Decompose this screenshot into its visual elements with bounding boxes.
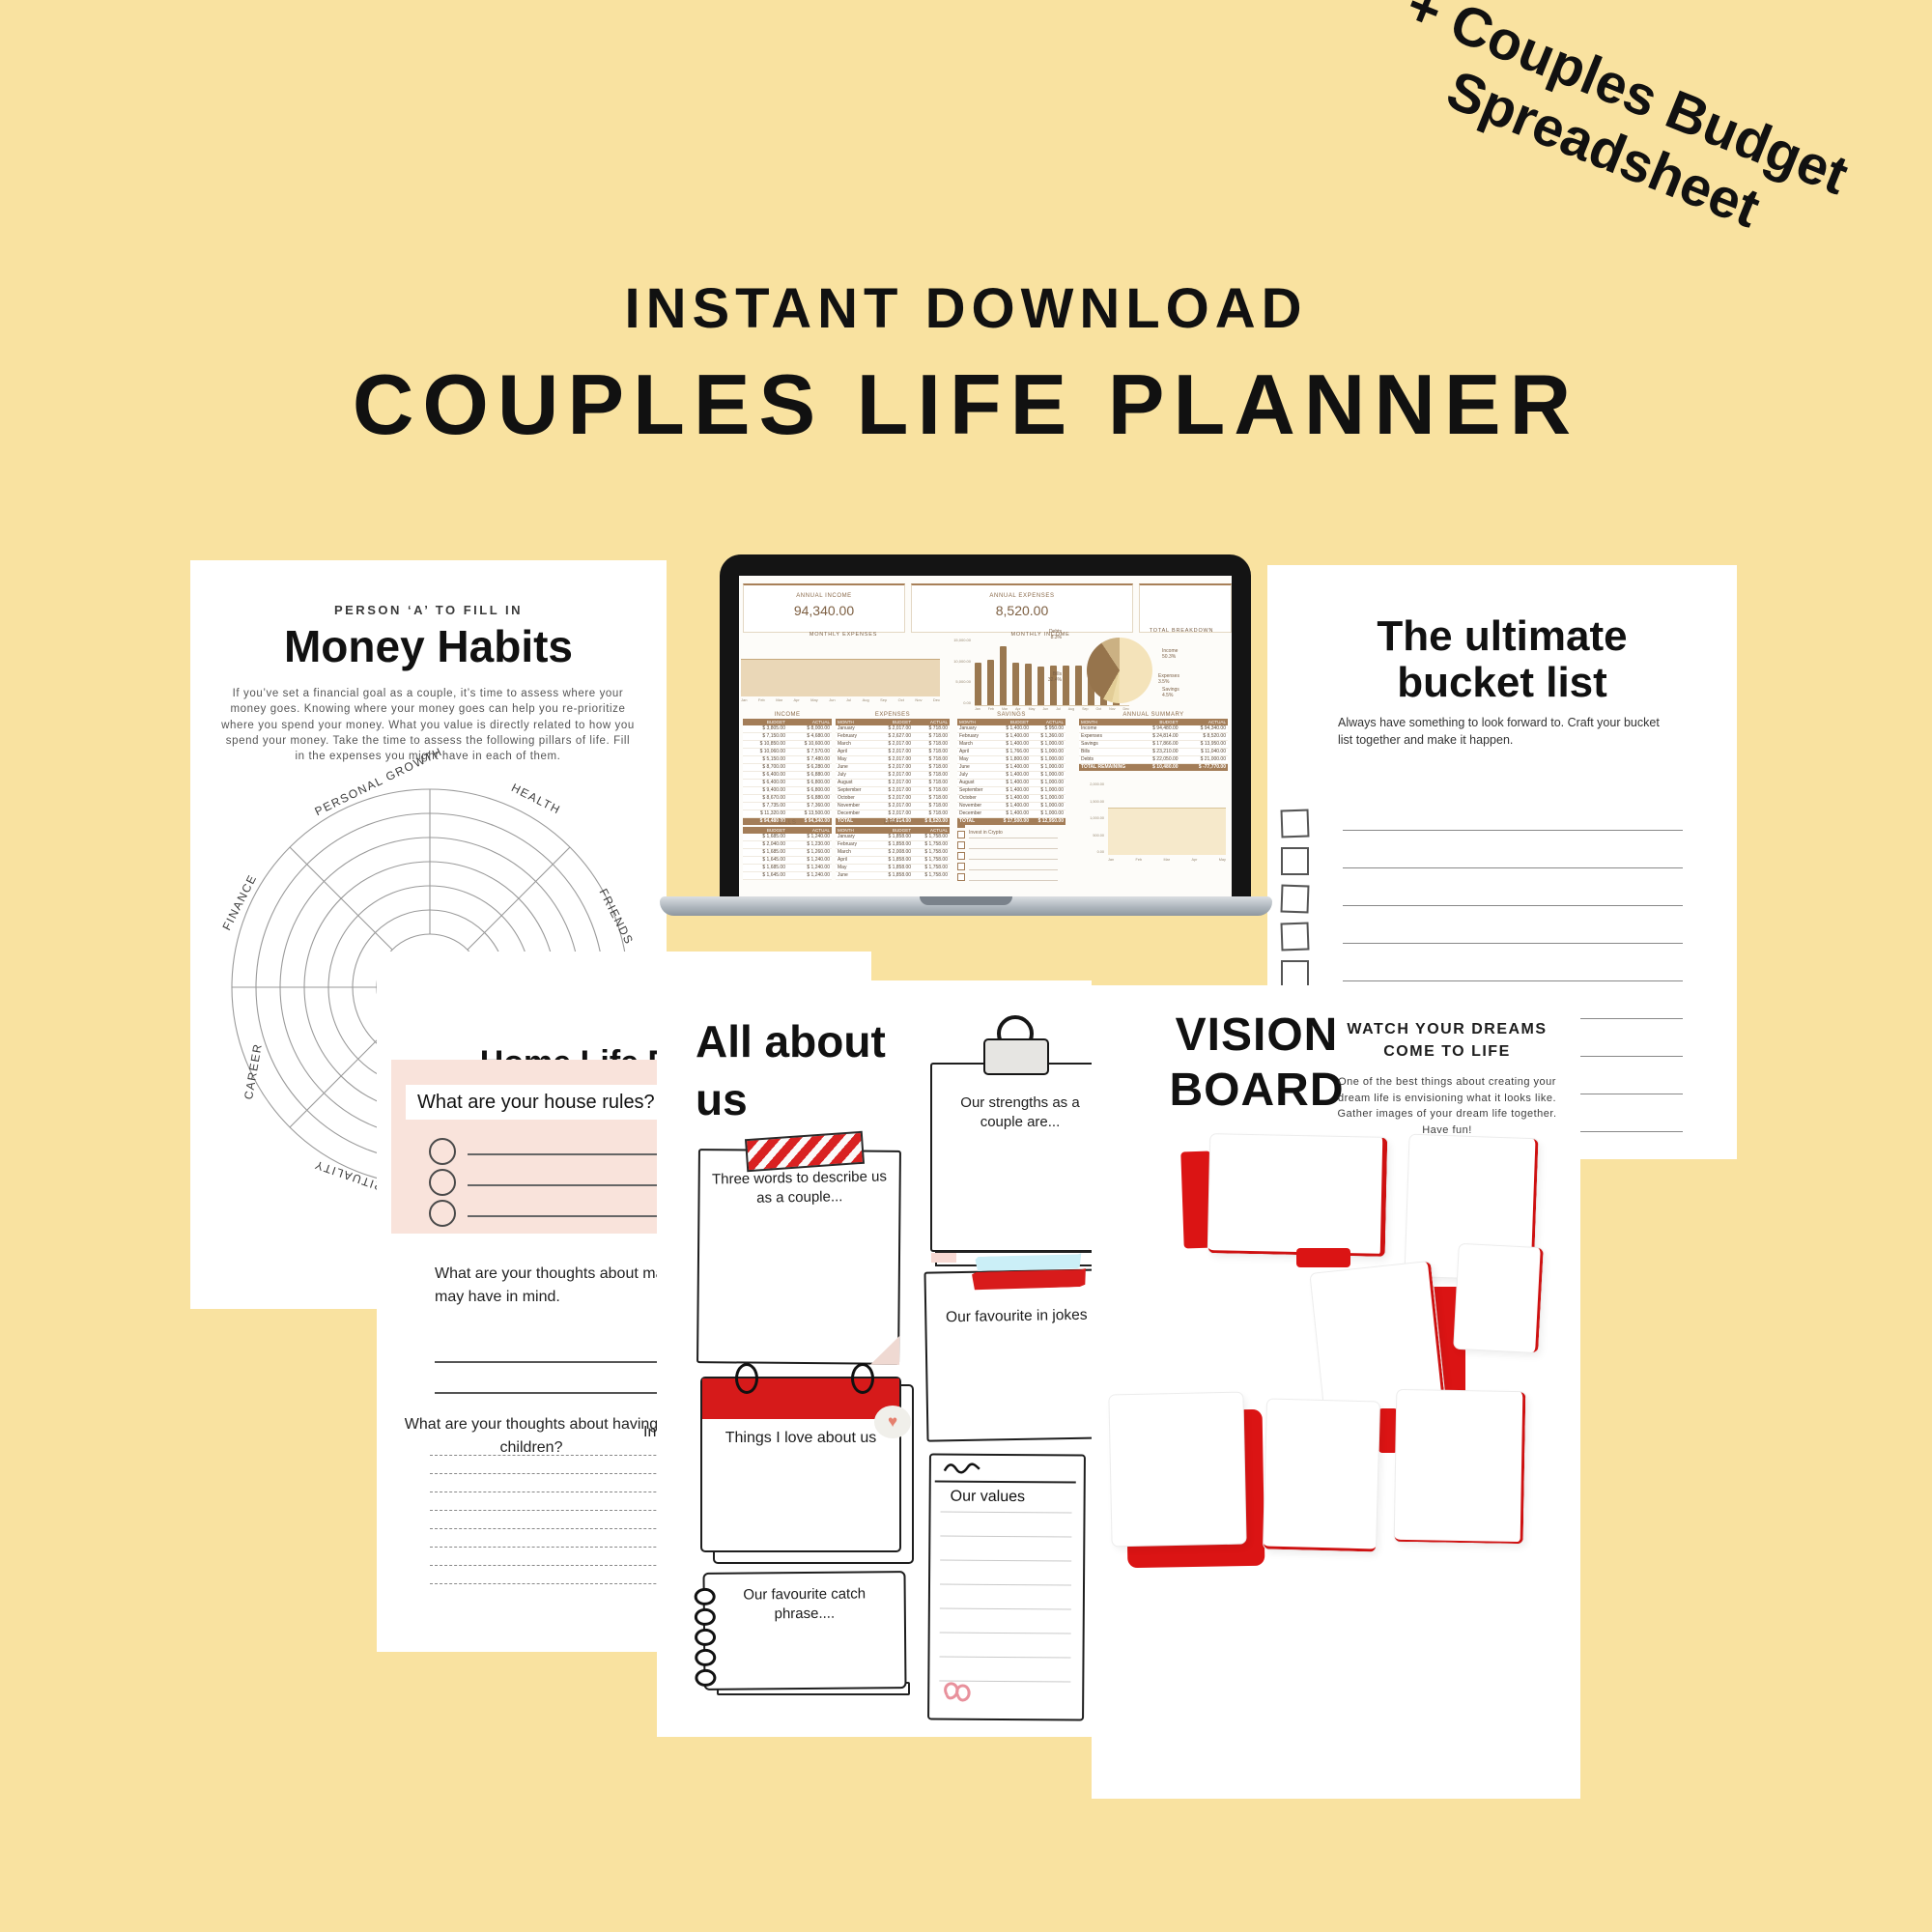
empty-checkbox	[957, 873, 965, 881]
pink-sheet-edge	[931, 1253, 956, 1263]
table-cell: $ 1,400.00	[996, 810, 1031, 817]
values-line	[940, 1536, 1071, 1538]
bar-axis-label: 0.00	[950, 700, 971, 705]
table-row: BUDGETACTUAL	[743, 719, 832, 725]
table-cell: $ 2,017.00	[876, 787, 913, 794]
table-cell: May	[957, 756, 996, 763]
bucket-list-title: The ultimate bucket list	[1267, 613, 1737, 705]
table-cell: $ 1,240.00	[787, 857, 832, 864]
table-cell: $ 718.00	[913, 772, 950, 779]
table-cell: $ 21,000.00	[1180, 756, 1228, 763]
table-row: $ 1,685.00$ 1,260.00	[743, 849, 832, 857]
expenses-table: EXPENSESMONTHBUDGETACTUALJanuary$ 2,017.…	[836, 711, 950, 825]
table-cell: ACTUAL	[913, 719, 950, 725]
table-cell: $ 1,758.00	[913, 834, 950, 840]
table-cell: July	[836, 772, 876, 779]
table-cell: $ 11,320.00	[743, 810, 787, 817]
table-cell: $ 1,000.00	[1031, 772, 1065, 779]
table-row: January$ 1,858.00$ 1,758.00	[836, 834, 950, 841]
table-cell: $ 718.00	[913, 733, 950, 740]
table-cell: $ 1,400.00	[996, 803, 1031, 810]
income-table: INCOMEBUDGETACTUAL$ 3,805.00$ 8,000.00$ …	[743, 711, 832, 825]
table-cell: $ 1,400.00	[996, 780, 1031, 786]
red-photo-block-3	[1378, 1408, 1398, 1453]
table-row: November$ 2,017.00$ 718.00	[836, 803, 950, 810]
table-title: SAVINGS	[957, 711, 1065, 719]
table-cell: BUDGET	[743, 827, 787, 834]
table-cell: $ 1,240.00	[787, 834, 832, 840]
income-bar	[1025, 664, 1032, 705]
empty-checkbox	[957, 863, 965, 870]
table-cell: April	[836, 857, 876, 864]
table-cell: $ 1,360.00	[1031, 733, 1065, 740]
table-cell: $ 1,400.00	[996, 772, 1031, 779]
table-cell: $ 3,805.00	[743, 725, 787, 732]
bucket-checkbox	[1281, 810, 1310, 838]
table-cell: January	[836, 834, 876, 840]
table-cell: $ 2,017.00	[876, 756, 913, 763]
table-cell: $ 1,000.00	[1031, 749, 1065, 755]
table-cell: $ 8,520.00	[1180, 733, 1228, 740]
table-row: November$ 1,400.00$ 1,000.00	[957, 803, 1065, 810]
income-bar	[1012, 663, 1019, 705]
table-cell: $ 1,685.00	[743, 834, 787, 840]
photo-frame-1	[1208, 1134, 1388, 1257]
table-cell: $ 7,360.00	[787, 803, 832, 810]
income-bar	[1000, 646, 1007, 705]
catch-phrase-note: Our favourite catch phrase....	[702, 1571, 906, 1690]
table-cell: $ 1,766.00	[996, 749, 1031, 755]
catch-phrase-text: Our favourite catch phrase....	[711, 1584, 898, 1624]
area-month-label: Nov	[915, 697, 922, 702]
table-cell: $ 2,017.00	[876, 741, 913, 748]
table-cell: $ 718.00	[913, 795, 950, 802]
table-cell: $ 6,800.00	[787, 780, 832, 786]
rule-bullet-3	[429, 1200, 456, 1227]
table-cell: $ 6,880.00	[787, 795, 832, 802]
table-cell: BUDGET	[743, 719, 787, 725]
mini-month-label: Mar	[1163, 858, 1170, 862]
table-cell: $ 9,400.00	[743, 787, 787, 794]
table-cell: MONTH	[1079, 719, 1132, 725]
area-month-label: May	[810, 697, 818, 702]
table-title: INCOME	[743, 711, 832, 719]
table-cell: Debts	[1079, 756, 1132, 763]
table-row: March$ 2,008.00$ 1,758.00	[836, 849, 950, 857]
table-cell: $ 6,800.00	[787, 787, 832, 794]
bar-y-axis: 15,000.0010,000.005,000.000.00	[950, 638, 971, 705]
table-row: January$ 1,400.00$ 950.00	[957, 725, 1065, 733]
money-habits-title: Money Habits	[190, 620, 667, 672]
values-ruled-lines	[931, 1455, 1084, 1456]
table-cell: $ 2,017.00	[876, 803, 913, 810]
table-cell: $ 1,000.00	[1031, 795, 1065, 802]
area-month-label: Oct	[898, 697, 904, 702]
table-cell: June	[957, 764, 996, 771]
table-cell: $ 1,400.00	[996, 764, 1031, 771]
table-row: $ 2,040.00$ 1,230.00	[743, 841, 832, 849]
table-cell: BUDGET	[996, 719, 1031, 725]
table-cell: April	[957, 749, 996, 755]
table-row: July$ 1,400.00$ 1,000.00	[957, 772, 1065, 780]
table-cell: $ 1,400.00	[996, 787, 1031, 794]
table-row: MONTHBUDGETACTUAL	[1079, 719, 1228, 725]
table-row: $ 8,670.00$ 6,880.00	[743, 795, 832, 803]
table-cell: $ 1,758.00	[913, 872, 950, 879]
area-month-label: Mar	[776, 697, 782, 702]
table-row: Debts$ 22,050.00$ 21,000.00	[1079, 756, 1228, 764]
table-row: February$ 1,858.00$ 1,758.00	[836, 841, 950, 849]
table-cell: December	[836, 810, 876, 817]
table-cell: BUDGET	[876, 719, 913, 725]
table-cell: $ 1,400.00	[996, 741, 1031, 748]
table-row: December$ 1,400.00$ 1,000.00	[957, 810, 1065, 818]
table-cell: $ 1,400.00	[996, 795, 1031, 802]
table-cell: $ 2,017.00	[876, 772, 913, 779]
values-line	[940, 1584, 1071, 1586]
all-about-us-page: All about us Three words to describe us …	[657, 980, 1092, 1737]
table-cell: $ 1,685.00	[743, 865, 787, 871]
table-cell: October	[957, 795, 996, 802]
table-cell: July	[957, 772, 996, 779]
red-photo-tab	[1296, 1248, 1350, 1267]
monthly-expenses-area-chart: JanFebMarAprMayJunJulAugSepOctNovDec	[741, 641, 948, 703]
table-cell: $ 11,040.00	[1180, 749, 1228, 755]
goal-text: Invest in Crypto	[969, 830, 1003, 836]
table-cell: $ 1,645.00	[743, 872, 787, 879]
values-line	[941, 1512, 1072, 1514]
table-cell: $ 10,060.00	[743, 749, 787, 755]
pie-label-expenses: Expenses3.5%	[1158, 674, 1197, 686]
empty-checkbox	[957, 831, 965, 838]
mini-axis-label: 500.00	[1079, 834, 1104, 838]
goal-line	[969, 838, 1058, 838]
table-row: TOTAL REMAINING$ 10,480.00$ -77,770.00	[1079, 764, 1228, 771]
bucket-line	[1343, 943, 1683, 944]
table-row: $ 10,060.00$ 7,570.00	[743, 749, 832, 756]
table-cell: May	[836, 756, 876, 763]
area-month-label: Jun	[829, 697, 835, 702]
table-row: May$ 1,800.00$ 1,000.00	[957, 756, 1065, 764]
table-cell: ACTUAL	[787, 827, 832, 834]
table-row: March$ 2,017.00$ 718.00	[836, 741, 950, 749]
table-row: Income$ 94,480.00$ 94,340.00	[1079, 725, 1228, 733]
table-row: $ 11,320.00$ 13,500.00	[743, 810, 832, 818]
our-values-note: Our values	[927, 1453, 1086, 1720]
table-cell: April	[836, 749, 876, 755]
table-cell: $ 718.00	[913, 749, 950, 755]
table-cell: March	[836, 741, 876, 748]
values-line	[940, 1560, 1071, 1562]
table-row: February$ 1,400.00$ 1,360.00	[957, 733, 1065, 741]
vision-board-paragraph: One of the best things about creating yo…	[1329, 1074, 1565, 1138]
mini-line-chart: 2,000.001,500.001,000.00500.000.00 JanFe…	[1079, 782, 1230, 875]
table-row: January$ 2,017.00$ 718.00	[836, 725, 950, 733]
table-cell: $ 1,758.00	[913, 841, 950, 848]
table-row: MONTHBUDGETACTUAL	[836, 719, 950, 725]
table-cell: $ 1,400.00	[996, 725, 1031, 732]
strengths-note: Our strengths as a couple are...	[930, 1063, 1092, 1252]
table-row: April$ 1,858.00$ 1,758.00	[836, 857, 950, 865]
table-cell: $ 1,858.00	[876, 841, 913, 848]
mini-month-label: Apr	[1191, 858, 1197, 862]
table-cell: $ 1,000.00	[1031, 764, 1065, 771]
table-row: MONTHBUDGETACTUAL	[836, 827, 950, 834]
table-row: $ 6,400.00$ 6,880.00	[743, 772, 832, 780]
table-cell: February	[957, 733, 996, 740]
table-cell: $ 2,040.00	[743, 841, 787, 848]
three-words-text: Three words to describe us as a couple..…	[705, 1167, 894, 1207]
table-cell: MONTH	[836, 827, 876, 834]
goal-row	[957, 872, 1075, 882]
bar-axis-label: 15,000.00	[950, 638, 971, 642]
savings-table: SAVINGSMONTHBUDGETACTUALJanuary$ 1,400.0…	[957, 711, 1065, 825]
table-cell: $ 94,340.00	[1180, 725, 1228, 732]
table-row: September$ 2,017.00$ 718.00	[836, 787, 950, 795]
table-row: $ 7,735.00$ 7,360.00	[743, 803, 832, 810]
table-cell: $ 1,000.00	[1031, 756, 1065, 763]
table-row: September$ 1,400.00$ 1,000.00	[957, 787, 1065, 795]
table-cell: Savings	[1079, 741, 1132, 748]
bucket-checkbox	[1281, 960, 1309, 988]
table-cell: $ 718.00	[913, 741, 950, 748]
table-cell: September	[836, 787, 876, 794]
table-cell: $ 94,480.00	[1132, 725, 1179, 732]
spiral-ring-4	[695, 1649, 716, 1666]
mini-axis-label: 1,000.00	[1079, 816, 1104, 820]
budget-spreadsheet-badge: + Couples Budget Spreadsheet	[1341, 0, 1890, 280]
bucket-title-line1: The ultimate	[1267, 613, 1737, 660]
goal-row	[957, 851, 1075, 861]
bucket-line	[1343, 867, 1683, 868]
table-row: October$ 1,400.00$ 1,000.00	[957, 795, 1065, 803]
table-cell: June	[836, 764, 876, 771]
annual-expenses-card: ANNUAL EXPENSES 8,520.00	[911, 583, 1133, 633]
photo-frame-6	[1109, 1393, 1245, 1547]
table-row: $ 1,685.00$ 1,240.00	[743, 834, 832, 841]
children-question: What are your thoughts about having chil…	[396, 1413, 667, 1460]
table-title: DEBT	[836, 819, 950, 827]
pie-label-bills: Bills32.4%	[1027, 672, 1062, 684]
table-cell: $ 6,400.00	[743, 772, 787, 779]
table-cell: $ 8,700.00	[743, 764, 787, 771]
table-cell: $ 6,400.00	[743, 780, 787, 786]
calendar-ring-right	[851, 1363, 874, 1394]
bucket-line	[1343, 830, 1683, 831]
pink-doodle-icon	[937, 1672, 972, 1707]
table-cell: June	[836, 872, 876, 879]
things-i-love-note: ♥ Things I love about us	[700, 1377, 901, 1552]
all-about-title-line1: All about	[696, 1019, 886, 1064]
area-month-label: Jan	[741, 697, 747, 702]
table-cell: October	[836, 795, 876, 802]
spiral-ring-3	[695, 1629, 716, 1646]
bar-axis-label: 5,000.00	[950, 679, 971, 684]
bucket-title-line2: bucket list	[1267, 660, 1737, 706]
table-row: $ 8,700.00$ 6,280.00	[743, 764, 832, 772]
three-words-note: Three words to describe us as a couple..…	[696, 1149, 901, 1365]
bucket-checkbox	[1281, 923, 1310, 952]
table-cell: $ 718.00	[913, 780, 950, 786]
table-row: May$ 1,858.00$ 1,758.00	[836, 865, 950, 872]
our-values-text: Our values	[951, 1489, 1025, 1507]
table-cell: $ 8,000.00	[787, 725, 832, 732]
total-breakdown-chart-title: TOTAL BREAKDOWN	[1133, 628, 1230, 634]
table-row: July$ 2,017.00$ 718.00	[836, 772, 950, 780]
total-breakdown-pie	[1087, 638, 1152, 703]
table-cell: $ 13,500.00	[787, 810, 832, 817]
table-cell: $ 22,050.00	[1132, 756, 1179, 763]
pie-label-income: Income50.3%	[1162, 649, 1201, 661]
values-line	[939, 1657, 1070, 1659]
rule-bullet-2	[429, 1169, 456, 1196]
table-cell: $ 4,680.00	[787, 733, 832, 740]
table-row: $ 6,400.00$ 6,800.00	[743, 780, 832, 787]
vision-board-page: VISION BOARD WATCH YOUR DREAMS COME TO L…	[1092, 985, 1580, 1799]
strengths-text: Our strengths as a couple are...	[938, 1094, 1092, 1131]
table-cell: $ 1,000.00	[1031, 810, 1065, 817]
table-cell: $ 718.00	[913, 803, 950, 810]
table-row: April$ 2,017.00$ 718.00	[836, 749, 950, 756]
goal-line	[969, 869, 1058, 870]
table-cell: ACTUAL	[1031, 719, 1065, 725]
table-cell: $ 7,570.00	[787, 749, 832, 755]
table-cell: MONTH	[957, 719, 996, 725]
table-row: $ 1,645.00$ 1,240.00	[743, 857, 832, 865]
table-cell: $ 7,150.00	[743, 733, 787, 740]
table-cell: $ 6,280.00	[787, 764, 832, 771]
monthly-expenses-chart-title: MONTHLY EXPENSES	[739, 632, 948, 638]
bucket-list-subtitle: Always have something to look forward to…	[1338, 714, 1666, 749]
table-cell: $ 718.00	[913, 764, 950, 771]
goal-line	[969, 859, 1058, 860]
mini-month-label: Jan	[1108, 858, 1114, 862]
table-cell: $ 1,000.00	[1031, 741, 1065, 748]
table-cell: $ 1,858.00	[876, 834, 913, 840]
table-cell: $ 1,758.00	[913, 857, 950, 864]
values-line	[940, 1608, 1071, 1610]
two-tone-washi-tape	[971, 1253, 1086, 1292]
table-cell: August	[836, 780, 876, 786]
table-cell: $ 13,950.00	[1180, 741, 1228, 748]
table-cell: February	[836, 841, 876, 848]
mini-area-fill	[1108, 808, 1226, 855]
partial-question-text: In	[643, 1421, 656, 1444]
table-cell: $ 1,240.00	[787, 865, 832, 871]
table-cell: $ 2,008.00	[876, 849, 913, 856]
table-cell: $ 718.00	[913, 725, 950, 732]
bills-table: BILLSBUDGETACTUAL$ 1,685.00$ 1,240.00$ 2…	[743, 819, 832, 880]
listing-image: INSTANT DOWNLOAD COUPLES LIFE PLANNER + …	[0, 0, 1932, 1932]
table-cell: $ 1,000.00	[1031, 780, 1065, 786]
table-row: Expenses$ 24,814.00$ 8,520.00	[1079, 733, 1228, 741]
table-cell: $ 1,645.00	[743, 857, 787, 864]
table-cell: $ 2,017.00	[876, 764, 913, 771]
table-row: February$ 2,627.00$ 718.00	[836, 733, 950, 741]
page-title: COUPLES LIFE PLANNER	[0, 355, 1932, 454]
annual-table: ANNUAL SUMMARYMONTHBUDGETACTUALIncome$ 9…	[1079, 711, 1228, 771]
goal-row	[957, 862, 1075, 871]
binder-clip-icon	[983, 1038, 1049, 1075]
rule-bullet-1	[429, 1138, 456, 1165]
table-cell: May	[836, 865, 876, 871]
table-cell: BUDGET	[876, 827, 913, 834]
table-cell: $ 10,850.00	[743, 741, 787, 748]
photo-frame-7	[1264, 1400, 1379, 1552]
in-jokes-note: Our favourite in jokes	[923, 1268, 1092, 1441]
bar-axis-label: 10,000.00	[950, 659, 971, 664]
table-cell: $ 2,017.00	[876, 749, 913, 755]
table-cell: ACTUAL	[787, 719, 832, 725]
table-cell: December	[957, 810, 996, 817]
things-i-love-text: Things I love about us	[708, 1429, 894, 1449]
area-month-label: Sep	[880, 697, 887, 702]
table-cell: $ 17,500.00	[996, 818, 1031, 825]
table-row: Bills$ 23,210.00$ 11,040.00	[1079, 749, 1228, 756]
table-cell: $ 1,758.00	[913, 865, 950, 871]
table-row: December$ 2,017.00$ 718.00	[836, 810, 950, 818]
table-cell: $ 2,017.00	[876, 795, 913, 802]
table-cell: $ 7,480.00	[787, 756, 832, 763]
mini-month-label: May	[1219, 858, 1226, 862]
debt-table: DEBTMONTHBUDGETACTUALJanuary$ 1,858.00$ …	[836, 819, 950, 880]
mini-axis-label: 0.00	[1079, 850, 1104, 854]
calendar-ring-left	[735, 1363, 758, 1394]
table-cell: $ 1,260.00	[787, 849, 832, 856]
table-cell: $ 12,950.00	[1031, 818, 1065, 825]
table-cell: $ 10,600.00	[787, 741, 832, 748]
table-row: $ 9,400.00$ 6,800.00	[743, 787, 832, 795]
table-row: May$ 2,017.00$ 718.00	[836, 756, 950, 764]
table-cell: January	[836, 725, 876, 732]
table-cell: $ 1,858.00	[876, 872, 913, 879]
table-cell: $ 10,480.00	[1132, 764, 1179, 771]
table-cell: $ 1,800.00	[996, 756, 1031, 763]
table-cell: TOTAL	[957, 818, 996, 825]
table-cell: $ 17,866.00	[1132, 741, 1179, 748]
mini-axis-label: 1,500.00	[1079, 800, 1104, 804]
laptop-screen-budget-dashboard: ANNUAL INCOME 94,340.00 ANNUAL EXPENSES …	[739, 576, 1232, 896]
table-row: June$ 1,400.00$ 1,000.00	[957, 764, 1065, 772]
laptop-base	[660, 896, 1272, 916]
table-row: August$ 2,017.00$ 718.00	[836, 780, 950, 787]
table-cell: $ 7,735.00	[743, 803, 787, 810]
table-title: BILLS	[743, 819, 832, 827]
mini-month-label: Feb	[1136, 858, 1143, 862]
table-cell: $ 950.00	[1031, 725, 1065, 732]
table-row: $ 10,850.00$ 10,600.00	[743, 741, 832, 749]
table-cell: $ 8,670.00	[743, 795, 787, 802]
mini-axis-label: 2,000.00	[1079, 782, 1104, 786]
annual-income-card: ANNUAL INCOME 94,340.00	[743, 583, 905, 633]
income-bar	[975, 663, 981, 705]
table-row: March$ 1,400.00$ 1,000.00	[957, 741, 1065, 749]
table-row: August$ 1,400.00$ 1,000.00	[957, 780, 1065, 787]
table-cell: $ -77,770.00	[1180, 764, 1228, 771]
table-cell: $ 1,400.00	[996, 733, 1031, 740]
table-cell: January	[957, 725, 996, 732]
mini-y-axis: 2,000.001,500.001,000.00500.000.00	[1079, 782, 1104, 854]
table-cell: $ 1,000.00	[1031, 803, 1065, 810]
area-fill	[741, 659, 940, 696]
table-row: TOTAL$ 17,500.00$ 12,950.00	[957, 818, 1065, 825]
table-cell: $ 718.00	[913, 810, 950, 817]
annual-expenses-label: ANNUAL EXPENSES	[912, 593, 1132, 599]
table-row: $ 1,685.00$ 1,240.00	[743, 865, 832, 872]
table-cell: $ 2,627.00	[876, 733, 913, 740]
annual-income-label: ANNUAL INCOME	[744, 593, 904, 599]
table-cell: $ 2,017.00	[876, 810, 913, 817]
